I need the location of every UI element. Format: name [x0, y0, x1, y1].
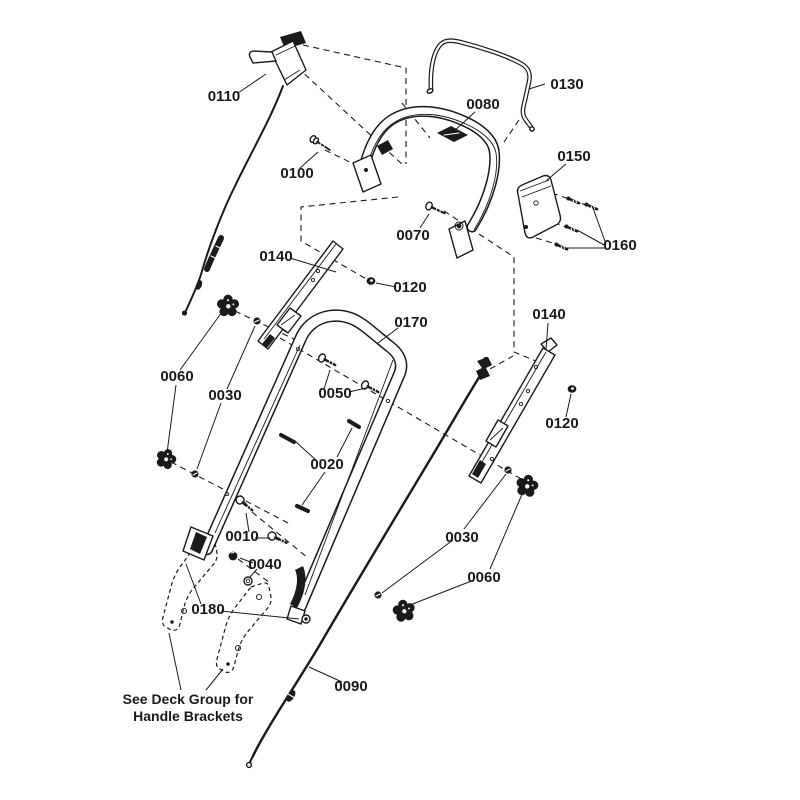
deck-group-note: See Deck Group for Handle Brackets — [123, 691, 254, 724]
callout-0110[interactable]: 0110 — [208, 88, 241, 105]
callout-0020[interactable]: 0020 — [310, 456, 343, 473]
part-0090-control-cable — [247, 357, 492, 767]
callout-0150[interactable]: 0150 — [557, 148, 590, 165]
callout-0030-left[interactable]: 0030 — [208, 387, 241, 404]
part-0050-bolt-b — [360, 380, 380, 396]
callout-0010[interactable]: 0010 — [225, 528, 258, 545]
part-0170-lower-handle — [183, 316, 401, 624]
callout-0130[interactable]: 0130 — [550, 76, 583, 93]
callout-0120-right[interactable]: 0120 — [545, 415, 578, 432]
part-control-cable-upper — [182, 86, 283, 316]
callout-0090[interactable]: 0090 — [334, 678, 367, 695]
callout-0100[interactable]: 0100 — [280, 165, 313, 182]
part-0160-screws — [554, 197, 597, 250]
callout-0160[interactable]: 0160 — [603, 237, 636, 254]
callout-0180[interactable]: 0180 — [191, 601, 224, 618]
part-0030-bolts — [191, 317, 511, 598]
callout-0060-left[interactable]: 0060 — [160, 368, 193, 385]
parts-diagram-canvas: 0110 0100 0130 0080 0150 0160 0070 0140 … — [0, 0, 800, 800]
callout-0120-left[interactable]: 0120 — [393, 279, 426, 296]
deck-group-note-line1: See Deck Group for — [123, 691, 254, 707]
callout-0140-left[interactable]: 0140 — [259, 248, 292, 265]
parts-diagram-page: 0110 0100 0130 0080 0150 0160 0070 0140 … — [0, 0, 800, 800]
part-0010-carriage-bolt-a — [234, 494, 254, 513]
deck-group-note-line2: Handle Brackets — [133, 708, 243, 724]
callout-0060-right[interactable]: 0060 — [467, 569, 500, 586]
callout-0050[interactable]: 0050 — [318, 385, 351, 402]
callout-0170[interactable]: 0170 — [394, 314, 427, 331]
part-0110-control-lever — [249, 31, 306, 85]
callout-0140-right[interactable]: 0140 — [532, 306, 565, 323]
part-0050-bolt-a — [317, 353, 337, 369]
callout-0030-right[interactable]: 0030 — [445, 529, 478, 546]
part-0100-screw — [309, 135, 332, 153]
callout-0070[interactable]: 0070 — [396, 227, 429, 244]
callout-0040[interactable]: 0040 — [248, 556, 281, 573]
part-0150-mount-bracket — [518, 176, 561, 238]
part-0070-bolt — [425, 201, 447, 217]
callout-0080[interactable]: 0080 — [466, 96, 499, 113]
